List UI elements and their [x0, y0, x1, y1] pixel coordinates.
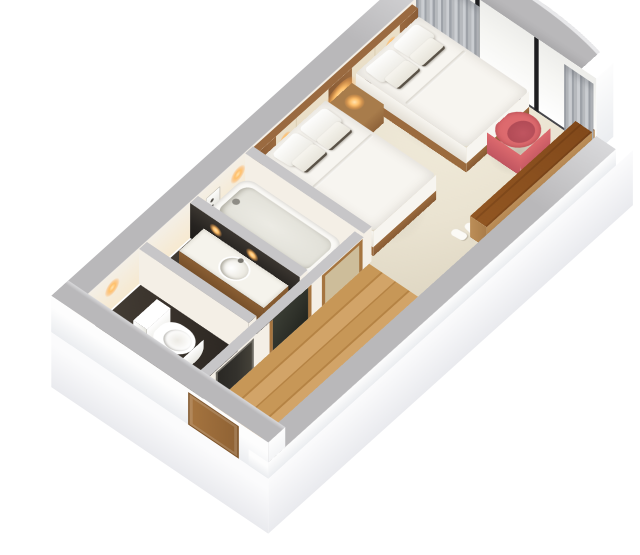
table-lamp-icon: [340, 91, 368, 113]
toilet-wall-light-icon: [105, 274, 119, 301]
shower-knob-icon: [210, 197, 213, 203]
floor-plan-stage: [0, 0, 640, 555]
